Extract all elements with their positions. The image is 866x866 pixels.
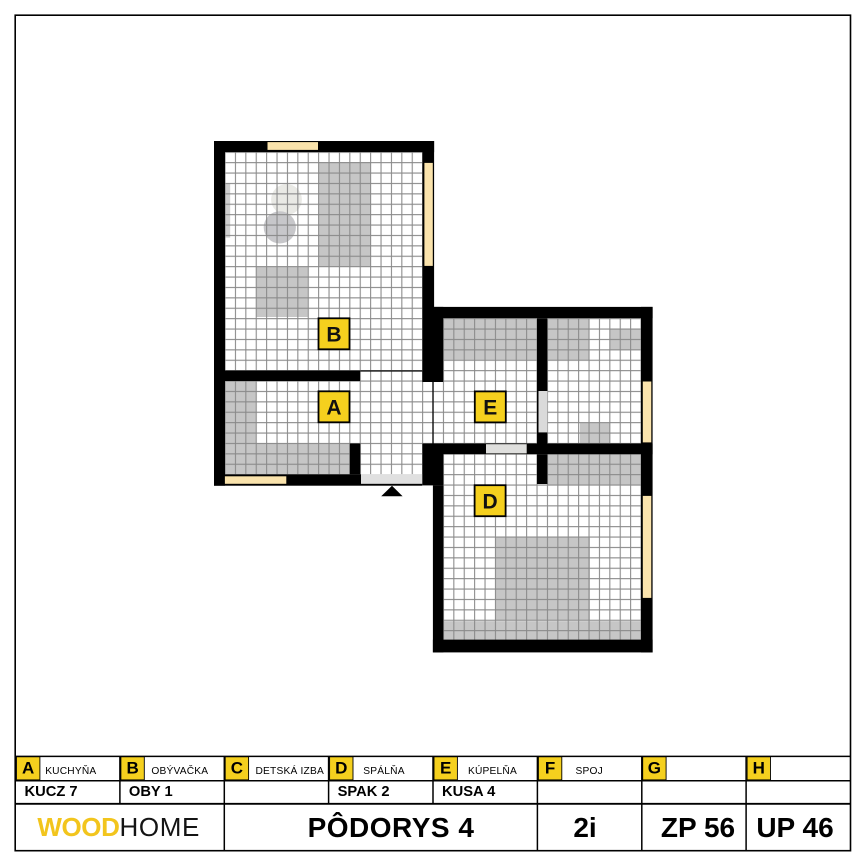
svg-text:WOOD: WOOD (37, 812, 119, 842)
svg-text:KUCZ 7: KUCZ 7 (25, 784, 78, 800)
svg-text:2i: 2i (573, 812, 596, 843)
svg-text:E: E (483, 397, 497, 420)
svg-text:HOME: HOME (120, 812, 200, 842)
svg-text:C: C (231, 759, 243, 778)
svg-text:SPOJ: SPOJ (576, 766, 603, 777)
svg-text:KUSA 4: KUSA 4 (442, 784, 496, 800)
svg-text:B: B (126, 759, 138, 778)
svg-text:ZP 56: ZP 56 (661, 812, 735, 843)
svg-text:F: F (545, 759, 555, 778)
svg-text:E: E (440, 759, 451, 778)
svg-text:B: B (326, 324, 341, 347)
svg-text:OBY 1: OBY 1 (129, 784, 173, 800)
svg-text:SPÁLŇA: SPÁLŇA (363, 764, 404, 777)
svg-text:A: A (22, 759, 34, 778)
svg-text:SPAK 2: SPAK 2 (338, 784, 390, 800)
svg-text:PÔDORYS 4: PÔDORYS 4 (308, 811, 475, 843)
svg-text:H: H (753, 759, 765, 778)
svg-text:D: D (335, 759, 347, 778)
svg-text:OBÝVAČKA: OBÝVAČKA (151, 764, 208, 777)
svg-text:D: D (483, 491, 498, 514)
svg-text:KUCHYŇA: KUCHYŇA (45, 764, 96, 777)
svg-text:A: A (326, 397, 341, 420)
svg-text:G: G (648, 759, 661, 778)
svg-text:DETSKÁ IZBA: DETSKÁ IZBA (256, 764, 324, 777)
svg-text:KÚPELŇA: KÚPELŇA (468, 764, 517, 777)
svg-text:UP 46: UP 46 (756, 812, 833, 843)
